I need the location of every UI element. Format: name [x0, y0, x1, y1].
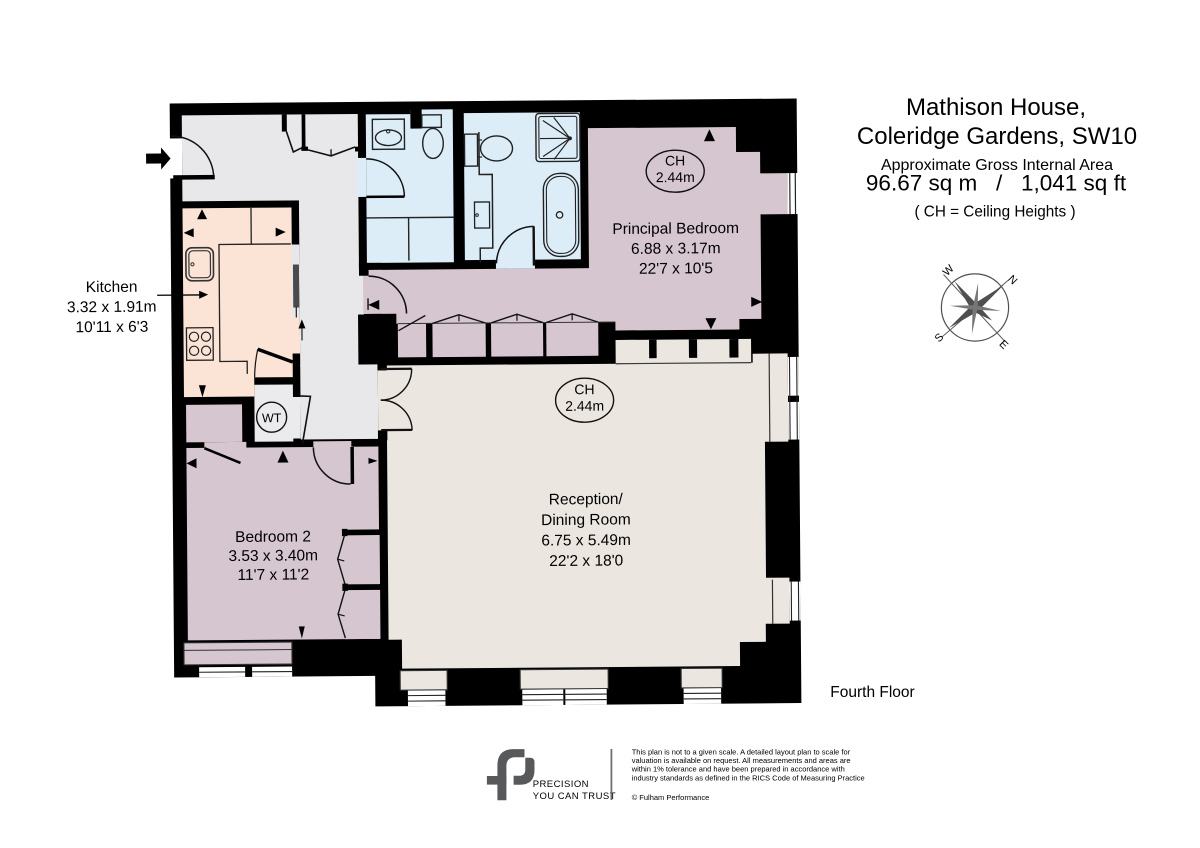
svg-text:( CH = Ceiling Heights ): ( CH = Ceiling Heights ) [914, 204, 1075, 221]
svg-text:YOU CAN TRUST: YOU CAN TRUST [533, 791, 616, 802]
svg-text:22'7 x 10'5: 22'7 x 10'5 [639, 260, 713, 278]
svg-text:Reception/: Reception/ [549, 491, 624, 509]
svg-text:This plan is not to a given sc: This plan is not to a given scale. A det… [632, 747, 851, 756]
svg-text:Bedroom 2: Bedroom 2 [235, 528, 311, 546]
svg-text:W: W [941, 262, 957, 278]
svg-text:industry standards as defined: industry standards as defined in the RIC… [632, 773, 865, 782]
svg-text:© Fulham Performance: © Fulham Performance [632, 793, 710, 802]
svg-text:PRECISION: PRECISION [533, 779, 589, 790]
svg-text:22'2 x 18'0: 22'2 x 18'0 [549, 552, 624, 570]
svg-text:CH: CH [574, 381, 594, 397]
svg-text:6.88 x 3.17m: 6.88 x 3.17m [631, 240, 721, 258]
svg-text:Dining Room: Dining Room [541, 511, 631, 529]
svg-text:valuation is available on requ: valuation is available on request. All m… [632, 756, 851, 765]
svg-text:3.53 x 3.40m: 3.53 x 3.40m [228, 547, 318, 565]
svg-text:CH: CH [665, 152, 685, 168]
svg-text:Fourth Floor: Fourth Floor [830, 684, 914, 701]
svg-text:2.44m: 2.44m [656, 169, 695, 185]
svg-text:2.44m: 2.44m [565, 398, 604, 414]
svg-text:11'7 x 11'2: 11'7 x 11'2 [237, 566, 309, 584]
svg-text:3.32 x 1.91m: 3.32 x 1.91m [67, 299, 157, 317]
svg-text:within 1% tolerance and have b: within 1% tolerance and have been prepar… [631, 765, 845, 774]
svg-text:N: N [1005, 273, 1019, 287]
svg-text:10'11 x 6'3: 10'11 x 6'3 [75, 319, 148, 337]
svg-text:Principal Bedroom: Principal Bedroom [612, 220, 739, 238]
svg-text:WT: WT [262, 411, 282, 425]
svg-text:S: S [933, 331, 947, 345]
svg-text:6.75 x 5.49m: 6.75 x 5.49m [541, 532, 631, 550]
svg-text:Kitchen: Kitchen [86, 279, 138, 296]
svg-text:Coleridge Gardens, SW10: Coleridge Gardens, SW10 [857, 123, 1137, 150]
svg-text:E: E [996, 338, 1010, 352]
svg-text:96.67 sq m / 1,041 sq ft: 96.67 sq m / 1,041 sq ft [866, 171, 1127, 196]
svg-text:Mathison House,: Mathison House, [906, 94, 1086, 121]
